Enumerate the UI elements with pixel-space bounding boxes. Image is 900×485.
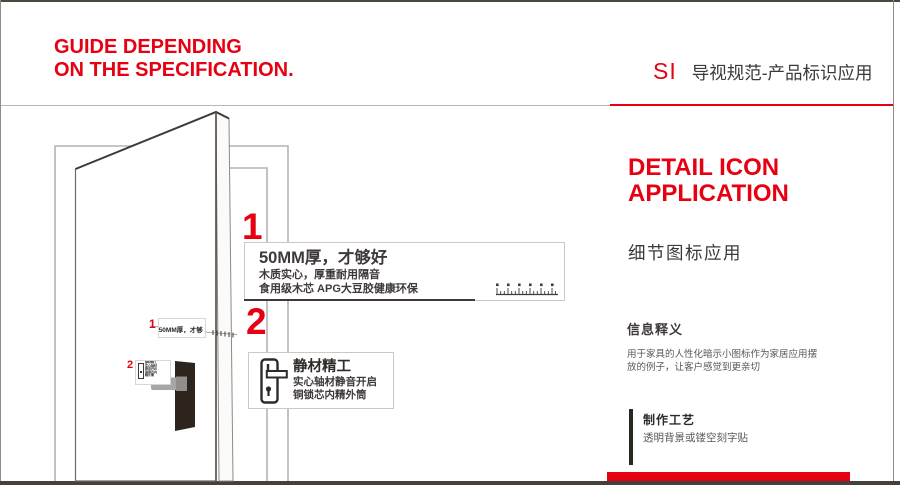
info-body: 用于家具的人性化暗示小图标作为家居应用摆放的例子，让客户感觉到更亲切 <box>627 349 825 374</box>
craft-marker-bar <box>629 409 633 465</box>
craft-body: 透明背景或镂空刻字贴 <box>643 430 748 445</box>
door-handle-icon <box>260 358 288 405</box>
door-name-label: 木门 <box>97 172 147 206</box>
ruler-scale-icon <box>495 283 559 296</box>
info-heading: 信息释义 <box>627 319 683 338</box>
mini-callout-1-strip: 50MM厚，才够好 木质实心，厚重耐用隔音 食用级木芯APG大豆胶健康环保 <box>158 318 206 338</box>
mini-handle-icon <box>138 363 144 379</box>
mini-callout-2-text: 静材精工 实心轴材静音开启 铜锁芯内精外筒 <box>145 361 158 373</box>
callout-1-title: 50MM厚，才够好 <box>259 248 564 269</box>
callout-1-underline <box>244 299 475 301</box>
section-title: DETAIL ICON APPLICATION <box>628 155 789 207</box>
header-divider <box>1 105 610 106</box>
page-border-right <box>893 0 894 481</box>
callout-2-line-2: 铜锁芯内精外筒 <box>293 389 377 402</box>
section-title-line2: APPLICATION <box>628 181 789 207</box>
doc-title: 导视规范-产品标识应用 <box>692 60 873 85</box>
header-divider-accent <box>610 104 893 106</box>
footer-accent-bar <box>607 472 850 481</box>
callout-2-text: 静材精工 实心轴材静音开启 铜锁芯内精外筒 <box>293 353 377 408</box>
mini-callout-2-strip: 静材精工 实心轴材静音开启 铜锁芯内精外筒 <box>135 360 171 385</box>
callout-2-number: 2 <box>246 305 267 339</box>
door-top-edge <box>76 112 230 169</box>
mini-callout-2: 2 静材精工 实心轴材静音开启 铜锁芯内精外筒 <box>127 360 171 385</box>
handle-plate <box>175 361 195 431</box>
spec-page: GUIDE DEPENDING ON THE SPECIFICATION. SI… <box>0 0 900 485</box>
door-subtitle-label: 材质与厚度 <box>97 206 155 221</box>
callout-1-box: 50MM厚，才够好 木质实心，厚重耐用隔音 食用级木芯 APG大豆胶健康环保 <box>244 242 565 301</box>
callout-2-title: 静材精工 <box>293 358 377 376</box>
page-title-line2: ON THE SPECIFICATION. <box>54 59 294 82</box>
page-border-left <box>0 0 1 481</box>
page-border-top <box>0 0 900 2</box>
mini-callout-1-number: 1 <box>149 318 156 330</box>
page-title-line1: GUIDE DEPENDING <box>54 36 294 59</box>
mini-callout-1-text: 50MM厚，才够好 木质实心，厚重耐用隔音 食用级木芯APG大豆胶健康环保 <box>159 327 203 338</box>
page-title: GUIDE DEPENDING ON THE SPECIFICATION. <box>54 36 294 82</box>
page-border-bottom <box>0 481 900 485</box>
callout-2-line-1: 实心轴材静音开启 <box>293 376 377 389</box>
brand-label: SI <box>653 58 677 85</box>
callout-1-line-1: 木质实心，厚重耐用隔音 <box>259 269 564 283</box>
door-side-face <box>216 112 233 481</box>
craft-heading: 制作工艺 <box>643 411 695 428</box>
door-front-face <box>76 112 217 481</box>
mini-callout-1: 1 50MM厚，才够好 木质实心，厚重耐用隔音 食用级木芯APG大豆胶健康环保 <box>149 318 206 338</box>
callout-1-number: 1 <box>242 210 263 244</box>
doc-header: SI 导视规范-产品标识应用 <box>653 58 873 85</box>
mini-callout-2-number: 2 <box>127 360 133 371</box>
edge-hatch-marks <box>213 330 233 338</box>
handle-rose <box>176 377 187 392</box>
callout-2-box: 静材精工 实心轴材静音开启 铜锁芯内精外筒 <box>248 352 394 409</box>
section-subtitle: 细节图标应用 <box>628 240 742 265</box>
section-title-line1: DETAIL ICON <box>628 155 789 181</box>
